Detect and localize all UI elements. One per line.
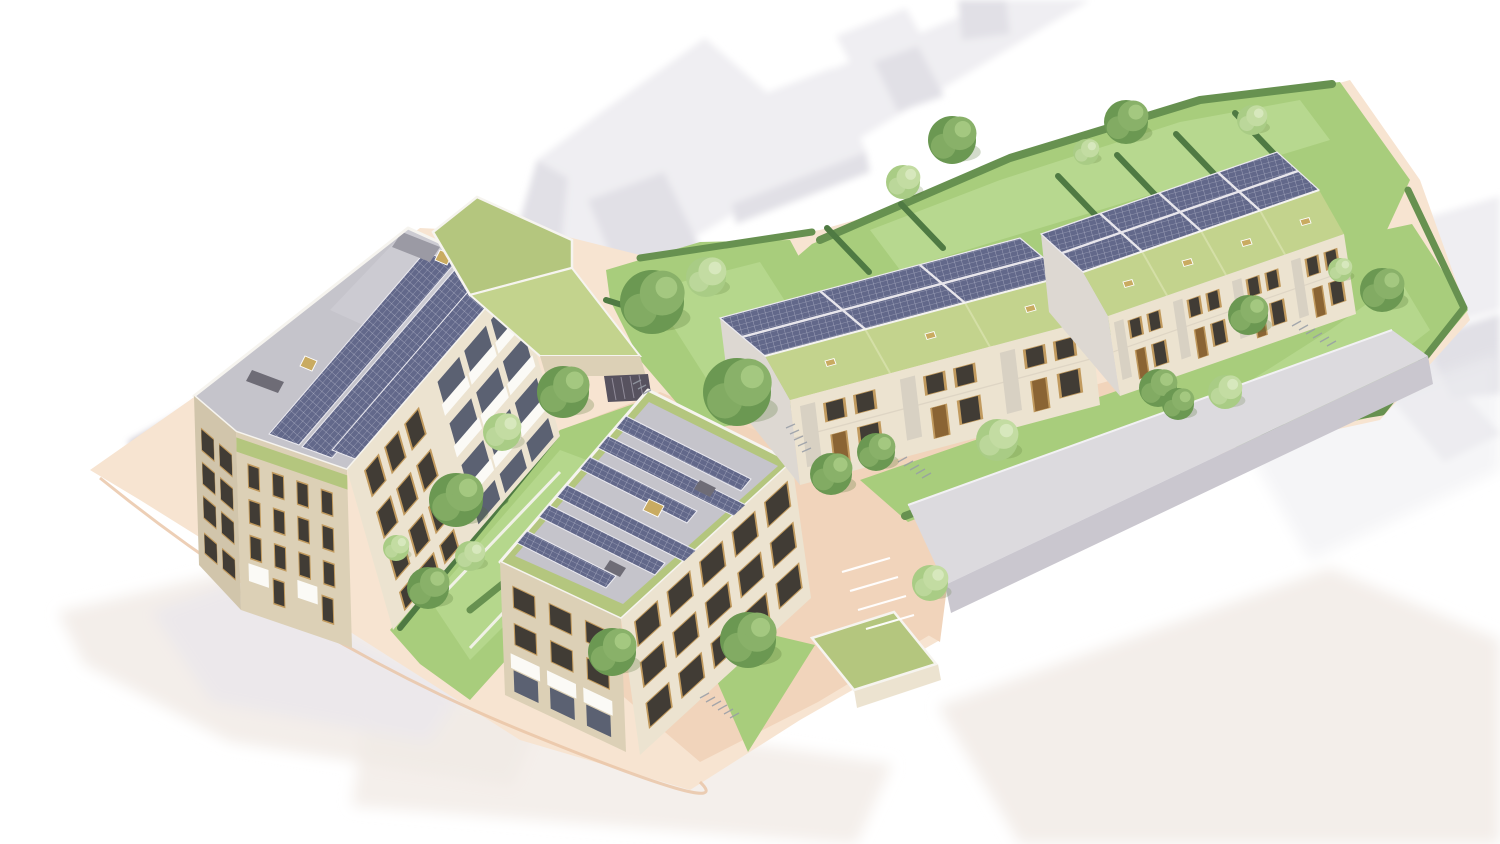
window (1206, 289, 1220, 311)
tree (912, 565, 952, 601)
tree (1073, 139, 1102, 165)
window (1329, 278, 1345, 305)
window (322, 595, 334, 624)
window (1147, 310, 1161, 332)
window (321, 489, 333, 516)
window (273, 579, 285, 608)
window (1152, 340, 1168, 367)
tree (686, 257, 730, 297)
window (1211, 319, 1227, 346)
window (1058, 369, 1082, 398)
tree (1104, 100, 1152, 144)
window (322, 525, 334, 552)
tree (483, 413, 525, 451)
window (323, 561, 335, 588)
door (1031, 377, 1050, 412)
tree (620, 270, 690, 334)
tree (1208, 375, 1245, 409)
window (248, 464, 260, 491)
window (249, 500, 261, 527)
tree (1162, 388, 1197, 420)
window (1270, 299, 1286, 326)
window (250, 535, 262, 562)
window (1129, 317, 1143, 339)
window (1265, 269, 1279, 291)
tree (1237, 105, 1270, 135)
tree (407, 567, 453, 609)
window (299, 552, 311, 579)
tree (810, 453, 856, 495)
tree (720, 612, 782, 668)
tree (1228, 295, 1272, 335)
door (931, 404, 950, 439)
tree (455, 541, 488, 571)
tree (703, 358, 778, 426)
tree (928, 116, 981, 164)
window (274, 544, 286, 571)
context-small-block (958, 0, 1010, 40)
tree (537, 366, 594, 418)
window (1306, 255, 1320, 277)
tree (588, 628, 641, 676)
window (298, 517, 310, 544)
tree (1328, 258, 1354, 282)
tree (383, 535, 412, 561)
window (1188, 296, 1202, 318)
tree (976, 419, 1022, 461)
rendering-canvas (0, 0, 1500, 844)
tree (1360, 268, 1408, 312)
window (297, 481, 309, 508)
window (273, 508, 285, 535)
site-rendering (0, 0, 1500, 844)
window (1247, 276, 1261, 298)
window (272, 473, 284, 500)
window (958, 395, 982, 424)
tree (857, 433, 899, 471)
tree (886, 165, 923, 199)
tree (429, 473, 488, 527)
